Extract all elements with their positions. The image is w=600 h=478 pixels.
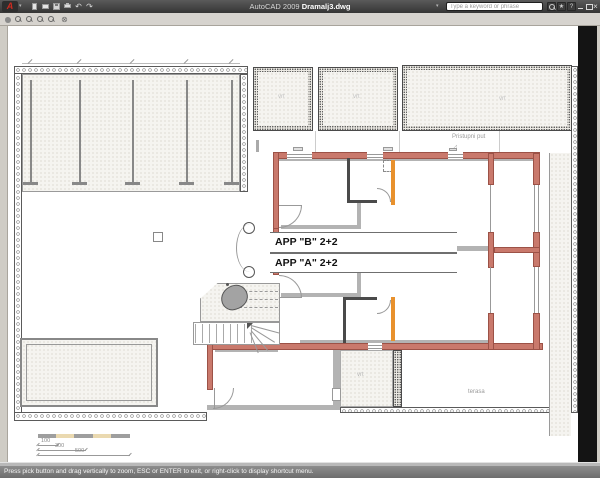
search-scope-caret-icon[interactable]: ▾ [436,3,439,9]
zoom-extents-icon[interactable] [47,15,56,24]
garden-label: vrt [357,372,364,378]
status-bar-message: Press pick button and drag vertically to… [0,466,600,478]
autocad-window: A ▾ ↶ ↷ AutoCAD 2009 Dramalj3.dwg ▾ ★ ? … [0,0,600,478]
zoom-realtime-icon[interactable] [14,15,23,24]
exit-zoom-icon[interactable]: ⊗ [60,15,69,24]
glazing-line [490,267,491,313]
favorites-star-icon[interactable]: ★ [557,2,566,11]
scale-segment [56,434,74,438]
planter-bed [20,338,158,407]
scale-segment [93,434,111,438]
garden-plot: vrt [402,65,572,131]
pan-icon[interactable] [3,15,12,24]
minimize-button[interactable] [577,2,584,11]
parking-divider-foot [23,182,38,185]
wall-interior [357,271,361,293]
window-sill [368,345,382,346]
window-sill [367,154,383,155]
property-line [499,131,500,153]
garden-label: vrt [278,94,285,100]
glazing-line [534,185,535,232]
glazing-line [538,185,539,232]
parking-divider [79,80,81,183]
party-wall [494,247,540,253]
site-border-top [14,66,248,74]
walk-line [239,307,278,308]
property-line [399,131,400,153]
door-arc [279,275,302,298]
glazing-line [538,267,539,313]
garden-plot: vrt [318,67,398,131]
zoom-toolbar: ⊗ [0,13,600,26]
garden-patch-bottom [340,350,393,407]
site-border-bottom-right [340,407,571,413]
garden-label: vrt [353,94,360,100]
parking-area [22,74,240,192]
close-button[interactable]: × [592,2,599,11]
parking-divider-foot [224,182,239,185]
entry-arc [236,224,250,272]
zoom-window-icon[interactable] [25,15,34,24]
window-sill [368,348,382,349]
plant-dot [226,283,229,286]
wall-exterior-right [533,153,540,185]
window-frame-left [0,26,8,462]
scale-segment [111,434,130,438]
parking-divider-foot [72,182,87,185]
out-of-sheet-area [578,26,597,462]
scale-dim-label: 300 [55,443,64,449]
wall-partition [347,200,377,203]
site-border-parking-right [240,74,248,192]
glazing-line [490,185,491,232]
access-road-label: Pristupni put [452,134,485,140]
property-line [315,131,316,153]
search-input[interactable] [446,2,543,11]
dim-tick [84,448,88,452]
garden-strip-right [549,153,571,436]
dim-tick [128,453,132,457]
drawing-canvas[interactable]: vrt vrt vrt vrt Pristupni put ◿ [0,26,600,462]
wall-interior [357,203,361,225]
wall-garage-bottom [207,405,340,410]
scale-dim-label: 500 [75,448,84,454]
wall-exterior-top [273,152,540,159]
staircase [193,322,280,345]
wall-inner-right [488,313,494,350]
zoom-previous-icon[interactable] [36,15,45,24]
glazing-line [534,267,535,313]
restore-button[interactable] [585,2,592,11]
parking-divider [231,80,233,183]
window-sill [448,154,463,155]
site-border-bottom-left [14,412,207,421]
wall-inner-right [488,153,494,185]
door-arc [377,188,391,202]
wall-partition [343,297,377,300]
window-opening [332,388,341,401]
scale-dim-line [38,455,130,456]
window-sill [287,154,312,155]
garden-label: vrt [499,96,506,102]
scale-segment [74,434,93,438]
door-arc [377,300,391,314]
search-icon[interactable] [547,2,556,11]
wall-partition [343,297,346,343]
joinery-accent [391,297,395,341]
help-icon[interactable]: ? [567,2,576,11]
canopy-line [256,140,259,152]
wall-exterior-left [207,343,213,390]
joinery-accent [391,160,395,205]
site-border-right [571,66,578,413]
roof-vent [293,147,303,151]
scale-dim-label: 100 [41,438,50,444]
window-sill [287,157,312,158]
parking-divider [30,80,32,183]
apartment-b-label: APP "B" 2+2 [270,232,457,253]
roof-vent [449,148,457,151]
wall-partition [347,158,350,203]
title-bar: A ▾ ↶ ↷ AutoCAD 2009 Dramalj3.dwg ▾ ★ ? … [0,0,600,13]
parking-divider [186,80,188,183]
wall-exterior-right [533,313,540,350]
window-sill [367,157,383,158]
window-sill [448,157,463,158]
apartment-a-label: APP "A" 2+2 [270,253,457,273]
column-marker [153,232,163,242]
roof-vent [383,147,393,151]
wall-inner-face [279,159,540,161]
parking-divider-foot [125,182,140,185]
garden-plot: vrt [253,67,313,131]
wall-interior [281,225,361,229]
parking-divider-foot [179,182,194,185]
parking-divider [132,80,134,183]
scale-bar [38,434,130,438]
wall-inner-face [215,350,278,352]
garden-edge-strip [393,350,402,407]
terrace-label: terasa [468,389,485,395]
